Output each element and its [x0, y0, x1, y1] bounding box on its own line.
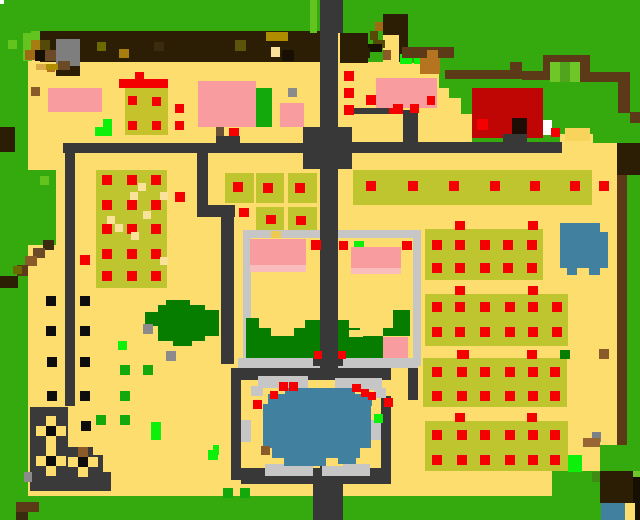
- red-dot: [505, 455, 515, 465]
- road-horizontal: [63, 143, 303, 153]
- light-green-patch: [31, 31, 40, 40]
- cross-arm: [46, 436, 56, 446]
- red-dot: [127, 200, 137, 210]
- blue-table: [600, 232, 608, 268]
- red-dot: [151, 175, 161, 185]
- gray-block: [24, 472, 32, 482]
- lime-dot: [633, 471, 640, 477]
- cross-arm: [56, 456, 66, 466]
- red-dot: [151, 224, 161, 234]
- red-dot: [338, 351, 346, 359]
- red-dot: [175, 104, 184, 113]
- gold-speck: [31, 40, 40, 50]
- lime-bar: [568, 455, 582, 472]
- tan-dot: [130, 192, 138, 200]
- post: [80, 357, 90, 367]
- olive-speck: [235, 40, 246, 51]
- red-dot: [490, 181, 500, 191]
- bush-shade: [560, 62, 570, 82]
- pond: [272, 448, 360, 458]
- lime-dot: [118, 341, 127, 350]
- red-dot: [455, 302, 465, 312]
- red-dot: [570, 181, 580, 191]
- black-speck: [282, 50, 294, 61]
- lime-dot: [374, 414, 383, 423]
- branch: [0, 276, 18, 288]
- cross-arm: [56, 426, 66, 436]
- road-south: [313, 484, 343, 520]
- red-dot: [599, 181, 609, 191]
- red-dot: [432, 367, 442, 377]
- cross-arm: [88, 457, 98, 467]
- red-dot: [314, 351, 322, 359]
- gray-dot: [288, 88, 297, 97]
- brown-dot: [216, 127, 224, 136]
- road-horizontal: [352, 142, 562, 153]
- porch: [216, 136, 240, 151]
- brown-dot: [31, 87, 40, 96]
- red-dot: [528, 286, 538, 295]
- lime-dot: [213, 445, 219, 455]
- red-dot: [368, 392, 376, 400]
- olive-speck: [370, 31, 378, 40]
- green-dot: [560, 350, 570, 359]
- tree-blob: [205, 310, 219, 336]
- soil-block: [600, 471, 633, 503]
- gold-speck: [266, 32, 288, 41]
- fence: [630, 112, 640, 123]
- red-dot: [253, 400, 262, 409]
- pink-house: [48, 88, 102, 112]
- gray-dot: [143, 324, 153, 334]
- red-dot: [455, 263, 465, 273]
- red-dot: [527, 240, 537, 250]
- red-dot: [408, 181, 418, 191]
- soil-patch: [358, 48, 370, 58]
- lime-dot: [95, 127, 112, 136]
- brown-bar: [583, 438, 600, 447]
- red-dot: [528, 367, 538, 377]
- red-dot: [530, 181, 540, 191]
- silver-ring: [251, 386, 263, 396]
- soil-black: [635, 503, 640, 520]
- tan-dot: [160, 192, 168, 200]
- barn: [472, 88, 543, 138]
- red-dot: [80, 255, 90, 265]
- red-dot: [480, 263, 490, 273]
- silver-ring: [241, 420, 251, 442]
- wall: [221, 214, 234, 364]
- village-map[interactable]: [0, 0, 640, 520]
- red-dot: [152, 97, 161, 106]
- red-dot: [128, 121, 137, 130]
- light-green-patch: [40, 176, 49, 185]
- post: [80, 391, 90, 401]
- red-dot: [393, 104, 403, 114]
- fence: [522, 71, 550, 80]
- pink-house: [280, 103, 304, 127]
- tan-dot: [160, 257, 168, 265]
- cross-arm: [36, 456, 46, 466]
- red-dot: [263, 183, 273, 193]
- fence: [510, 62, 522, 71]
- soil-block: [617, 143, 640, 175]
- green-dot: [120, 415, 130, 425]
- red-dot: [432, 263, 442, 273]
- fence: [590, 72, 630, 82]
- crop-strip: [425, 294, 568, 346]
- brown-speck: [58, 61, 70, 70]
- red-dot: [239, 208, 249, 217]
- red-dot: [480, 240, 490, 250]
- tree: [294, 328, 320, 336]
- tan-dot: [131, 232, 139, 240]
- brown-dot: [599, 349, 609, 359]
- blue-table: [560, 223, 600, 268]
- black-speck: [368, 44, 382, 52]
- sand-patch: [449, 98, 461, 143]
- gold-sand-patch: [565, 128, 590, 141]
- tree: [246, 328, 271, 336]
- tan-dot: [107, 216, 115, 224]
- road-stub: [403, 110, 418, 143]
- crop-strip: [423, 358, 567, 407]
- tree: [383, 328, 410, 336]
- silver-wall: [413, 230, 421, 366]
- cross-arm: [46, 466, 56, 476]
- post: [47, 391, 57, 401]
- olive-speck: [97, 42, 106, 51]
- green-hedge: [256, 88, 272, 127]
- red-dot: [344, 71, 354, 81]
- sand-notch: [349, 330, 363, 337]
- red-dot: [432, 430, 442, 440]
- red-dot: [550, 455, 560, 465]
- dark-speck: [35, 50, 45, 61]
- cross-center: [46, 426, 56, 436]
- red-dot: [480, 430, 490, 440]
- cross-arm: [36, 426, 46, 436]
- red-dot: [402, 241, 412, 250]
- light-green-patch: [8, 40, 17, 49]
- silver-ring: [371, 420, 381, 440]
- red-dot: [366, 95, 376, 105]
- red-dot: [432, 240, 442, 250]
- well-structure: [30, 472, 111, 491]
- red-dot: [550, 367, 560, 377]
- brown-speck: [154, 42, 164, 51]
- soil-black: [633, 476, 640, 503]
- brown-speck: [25, 50, 35, 60]
- red-dot: [480, 367, 490, 377]
- wall: [197, 150, 208, 213]
- gold-block: [271, 231, 281, 238]
- red-dot: [528, 302, 538, 312]
- red-dot: [339, 241, 348, 250]
- red-dot: [505, 430, 515, 440]
- pink-roof-light: [250, 265, 306, 272]
- red-dot: [505, 391, 515, 401]
- red-dot: [455, 221, 465, 230]
- red-dot: [344, 105, 354, 115]
- red-dot: [296, 216, 306, 225]
- tree-blob: [166, 300, 190, 305]
- gray-dot: [166, 351, 176, 361]
- green-dot: [143, 365, 153, 375]
- pond-wall: [231, 368, 241, 480]
- red-dot: [527, 413, 537, 422]
- road-edge: [338, 0, 343, 33]
- fence: [445, 70, 522, 79]
- tree-blob: [173, 336, 192, 346]
- tan-speck: [271, 47, 280, 57]
- red-dot: [102, 224, 112, 234]
- tree: [246, 336, 320, 358]
- red-dot: [102, 271, 112, 281]
- green-dot: [240, 488, 250, 498]
- red-dot: [552, 302, 562, 312]
- cross-arm: [68, 457, 78, 467]
- red-dot: [528, 430, 538, 440]
- lime-bar: [151, 422, 161, 440]
- red-dot: [505, 367, 515, 377]
- sand-patch: [313, 380, 335, 388]
- red-dot: [102, 249, 112, 259]
- grass-left-column: [0, 0, 28, 520]
- pond: [284, 458, 326, 466]
- red-dot: [127, 175, 137, 185]
- red-dot: [455, 286, 465, 295]
- orange-block: [420, 58, 440, 74]
- red-dot: [457, 350, 469, 359]
- post: [80, 296, 90, 306]
- house-roof: [119, 79, 168, 88]
- pink-roof-light: [351, 268, 401, 274]
- pink-roof: [351, 247, 401, 268]
- red-dot: [527, 350, 537, 359]
- red-dot: [480, 391, 490, 401]
- gold-speck: [375, 22, 383, 31]
- red-dot: [233, 182, 243, 192]
- red-dot: [384, 398, 393, 407]
- red-dot: [152, 121, 161, 130]
- red-dot: [151, 271, 161, 281]
- gold-speck: [119, 49, 129, 58]
- red-dot: [457, 430, 467, 440]
- red-dot: [366, 181, 376, 191]
- red-dot: [480, 302, 490, 312]
- red-dot: [127, 271, 137, 281]
- white-marker: [0, 0, 4, 4]
- grass-right-column: [627, 143, 640, 453]
- red-dot: [503, 240, 513, 250]
- red-dot: [102, 200, 112, 210]
- fence: [618, 82, 630, 113]
- red-dot: [427, 96, 435, 105]
- red-dot: [270, 391, 278, 399]
- red-dot: [503, 263, 513, 273]
- red-dot: [528, 327, 538, 337]
- water: [601, 503, 625, 520]
- pond-wall: [408, 368, 418, 400]
- red-dot: [455, 327, 465, 337]
- pond-wall: [381, 396, 391, 484]
- tan-dot: [138, 183, 146, 191]
- pond: [338, 458, 356, 464]
- green-dot: [96, 415, 106, 425]
- cross-arm: [46, 446, 56, 456]
- fence: [16, 512, 28, 520]
- red-dot: [457, 391, 467, 401]
- red-dot: [528, 221, 538, 230]
- post: [46, 296, 56, 306]
- sand-patch: [461, 114, 472, 143]
- red-dot: [449, 181, 459, 191]
- red-dot: [432, 391, 442, 401]
- red-dot: [229, 128, 239, 136]
- brown-dot: [261, 446, 270, 455]
- red-dot: [552, 327, 562, 337]
- red-dot: [432, 327, 442, 337]
- red-dot: [455, 240, 465, 250]
- post: [47, 357, 57, 367]
- red-dot: [457, 367, 467, 377]
- red-dot: [432, 455, 442, 465]
- cross-top: [78, 447, 88, 457]
- red-dot: [151, 200, 161, 210]
- pond: [263, 404, 371, 448]
- crop-strip: [353, 170, 592, 205]
- red-dot: [175, 192, 185, 202]
- red-dot: [480, 327, 490, 337]
- red-dot: [344, 88, 354, 98]
- brown-speck: [45, 50, 56, 61]
- orange-block: [427, 50, 438, 58]
- table-leg: [567, 268, 577, 275]
- post: [46, 326, 56, 336]
- olive-speck: [40, 40, 50, 50]
- cross-center: [46, 456, 56, 466]
- red-dot: [266, 215, 276, 224]
- red-dot: [527, 263, 537, 273]
- red-dot: [457, 455, 467, 465]
- red-dot: [102, 175, 112, 185]
- post: [81, 421, 91, 431]
- tan-speck: [36, 64, 46, 70]
- green-dot: [120, 365, 130, 375]
- light-green-stripe: [310, 0, 317, 33]
- pink-roof: [250, 239, 306, 265]
- post: [80, 326, 90, 336]
- red-dot: [311, 240, 321, 250]
- cross-arm: [78, 467, 88, 477]
- red-dot: [477, 119, 488, 130]
- gold-speck: [46, 64, 58, 70]
- red-dot: [279, 382, 288, 391]
- table-leg: [589, 268, 600, 275]
- red-dot: [295, 183, 305, 193]
- red-dot: [175, 121, 184, 130]
- red-dot: [455, 413, 465, 422]
- wall: [65, 143, 75, 406]
- fence: [16, 502, 39, 512]
- cross-arm: [46, 416, 56, 426]
- red-dot: [505, 302, 515, 312]
- red-dot: [551, 128, 560, 137]
- red-dot: [550, 391, 560, 401]
- red-dot: [550, 430, 560, 440]
- olive-speck: [13, 266, 22, 274]
- red-dot: [480, 455, 490, 465]
- red-dot: [289, 382, 298, 391]
- red-dot: [528, 455, 538, 465]
- red-dot: [505, 327, 515, 337]
- fence: [617, 175, 627, 445]
- red-dot: [128, 96, 137, 105]
- sand-patch: [625, 503, 635, 520]
- green-dot: [120, 391, 130, 401]
- tan-dot: [143, 211, 151, 219]
- pink-house: [198, 81, 256, 127]
- crop-strip: [425, 421, 568, 471]
- tan-dot: [115, 224, 123, 232]
- red-dot: [432, 302, 442, 312]
- cross-center: [78, 457, 88, 467]
- brown-speck: [383, 50, 391, 60]
- red-dot: [528, 391, 538, 401]
- soil-square: [0, 127, 15, 152]
- green-dot: [223, 488, 233, 498]
- red-dot: [352, 384, 361, 392]
- red-dot: [410, 104, 419, 113]
- red-dot: [127, 249, 137, 259]
- sand-patch: [439, 88, 449, 143]
- pink-patch: [383, 337, 408, 358]
- fence: [580, 55, 590, 82]
